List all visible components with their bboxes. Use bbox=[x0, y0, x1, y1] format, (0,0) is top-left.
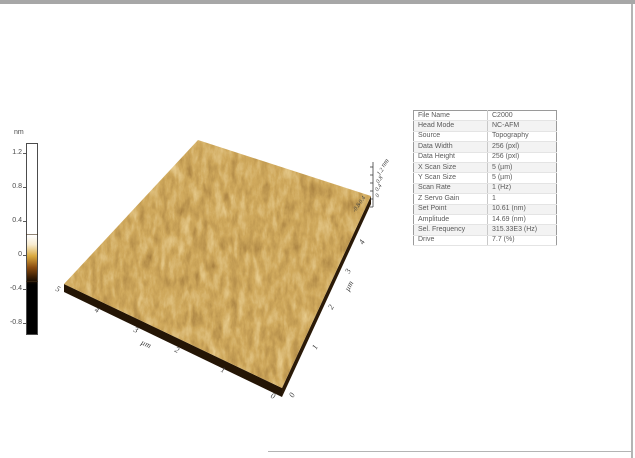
param-label: Sel. Frequency bbox=[414, 225, 488, 235]
table-row: Amplitude14.69 (nm) bbox=[414, 214, 557, 224]
param-value: C2000 bbox=[488, 111, 557, 121]
param-label: Head Mode bbox=[414, 121, 488, 131]
param-value: 5 (µm) bbox=[488, 173, 557, 183]
param-label: Drive bbox=[414, 235, 488, 245]
param-label: Scan Rate bbox=[414, 183, 488, 193]
param-label: Amplitude bbox=[414, 214, 488, 224]
afm-analysis-window: nm 1.20.80.40-0.4-0.8 bbox=[0, 0, 635, 458]
param-value: 256 (pxl) bbox=[488, 142, 557, 152]
table-row: X Scan Size5 (µm) bbox=[414, 162, 557, 172]
param-label: Set Point bbox=[414, 204, 488, 214]
param-value: 1 bbox=[488, 194, 557, 204]
param-value: 5 (µm) bbox=[488, 162, 557, 172]
param-label: File Name bbox=[414, 111, 488, 121]
table-row: Data Height256 (pxl) bbox=[414, 152, 557, 162]
parameter-table: File NameC2000Head ModeNC-AFMSourceTopog… bbox=[413, 110, 557, 246]
param-label: Y Scan Size bbox=[414, 173, 488, 183]
table-row: Z Servo Gain1 bbox=[414, 194, 557, 204]
param-value: 1 (Hz) bbox=[488, 183, 557, 193]
table-row: Drive7.7 (%) bbox=[414, 235, 557, 245]
table-row: SourceTopography bbox=[414, 131, 557, 141]
param-value: Topography bbox=[488, 131, 557, 141]
table-row: Set Point10.61 (nm) bbox=[414, 204, 557, 214]
table-row: Head ModeNC-AFM bbox=[414, 121, 557, 131]
param-value: 14.69 (nm) bbox=[488, 214, 557, 224]
param-label: Data Height bbox=[414, 152, 488, 162]
param-label: X Scan Size bbox=[414, 162, 488, 172]
param-label: Data Width bbox=[414, 142, 488, 152]
table-row: Sel. Frequency315.33E3 (Hz) bbox=[414, 225, 557, 235]
param-value: 10.61 (nm) bbox=[488, 204, 557, 214]
param-value: 256 (pxl) bbox=[488, 152, 557, 162]
param-label: Source bbox=[414, 131, 488, 141]
table-row: File NameC2000 bbox=[414, 111, 557, 121]
param-value: 315.33E3 (Hz) bbox=[488, 225, 557, 235]
param-value: 7.7 (%) bbox=[488, 235, 557, 245]
table-row: Scan Rate1 (Hz) bbox=[414, 183, 557, 193]
param-value: NC-AFM bbox=[488, 121, 557, 131]
table-row: Data Width256 (pxl) bbox=[414, 142, 557, 152]
table-row: Y Scan Size5 (µm) bbox=[414, 173, 557, 183]
param-label: Z Servo Gain bbox=[414, 194, 488, 204]
